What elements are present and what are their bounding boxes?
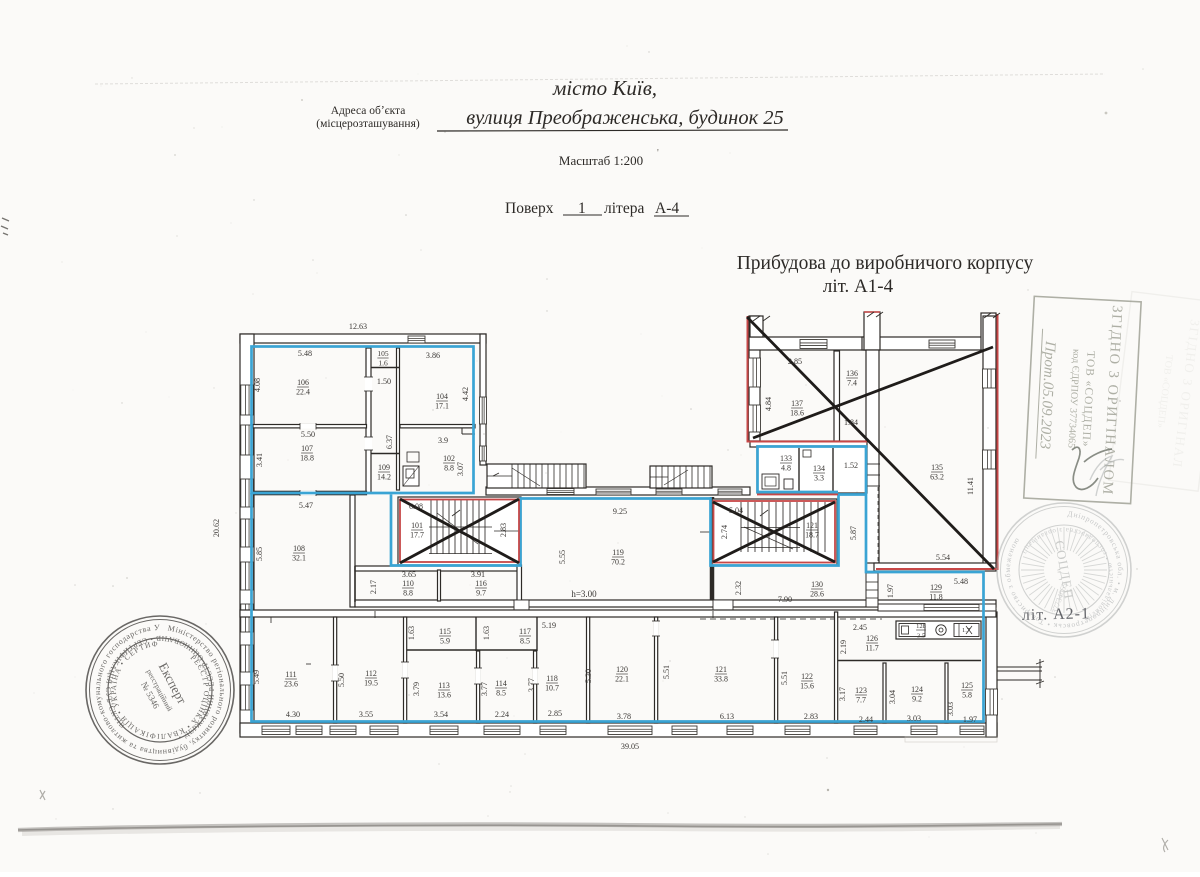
svg-text:112: 112 <box>365 669 377 678</box>
svg-text:14.2: 14.2 <box>377 473 391 482</box>
svg-text:вулиця Преображенська, будинок: вулиця Преображенська, будинок 25 <box>466 107 784 129</box>
svg-text:9.2: 9.2 <box>912 695 922 704</box>
svg-text:1.97: 1.97 <box>963 715 977 724</box>
svg-text:17.1: 17.1 <box>435 402 449 411</box>
svg-text:7.7: 7.7 <box>856 696 866 705</box>
svg-text:11.7: 11.7 <box>865 644 879 653</box>
svg-text:5.04: 5.04 <box>729 506 743 515</box>
svg-text:17.7: 17.7 <box>410 531 424 540</box>
svg-text:2.74: 2.74 <box>720 525 729 539</box>
svg-text:5.47: 5.47 <box>299 501 313 510</box>
svg-text:110: 110 <box>402 579 414 588</box>
svg-text:23.6: 23.6 <box>284 680 298 689</box>
svg-text:5.55: 5.55 <box>558 550 567 564</box>
svg-text:1.63: 1.63 <box>407 626 416 640</box>
svg-text:18.7: 18.7 <box>805 531 819 540</box>
svg-text:137: 137 <box>791 399 803 408</box>
svg-text:2.83: 2.83 <box>499 523 508 537</box>
svg-text:10.7: 10.7 <box>545 684 559 693</box>
svg-text:2.17: 2.17 <box>369 580 378 594</box>
svg-text:5.87: 5.87 <box>849 526 858 540</box>
svg-text:5.50: 5.50 <box>337 673 346 687</box>
svg-text:4.84: 4.84 <box>764 397 773 411</box>
svg-text:1.50: 1.50 <box>377 377 391 386</box>
svg-text:3.07: 3.07 <box>456 462 465 476</box>
svg-text:літ. А1-4: літ. А1-4 <box>823 276 894 297</box>
svg-text:7.4: 7.4 <box>847 379 857 388</box>
svg-text:120: 120 <box>616 665 628 674</box>
svg-text:123: 123 <box>855 686 867 695</box>
svg-text:3.9: 3.9 <box>438 436 448 445</box>
svg-text:19.5: 19.5 <box>364 679 378 688</box>
svg-text:116: 116 <box>475 579 487 588</box>
svg-text:5.54: 5.54 <box>936 553 950 562</box>
svg-text:8.5: 8.5 <box>520 637 530 646</box>
svg-text:3.79: 3.79 <box>412 682 421 696</box>
svg-text:1.6: 1.6 <box>378 359 388 368</box>
svg-text:5.51: 5.51 <box>662 665 671 679</box>
svg-text:5.30: 5.30 <box>584 669 593 683</box>
svg-text:33.8: 33.8 <box>714 675 728 684</box>
svg-text:133: 133 <box>780 454 792 463</box>
svg-text:4.8: 4.8 <box>781 464 791 473</box>
svg-text:3.03: 3.03 <box>946 702 955 716</box>
svg-text:4.30: 4.30 <box>286 710 300 719</box>
svg-text:136: 136 <box>846 369 858 378</box>
svg-text:11.8: 11.8 <box>929 593 943 602</box>
svg-text:2.32: 2.32 <box>734 581 743 595</box>
svg-text:5.85: 5.85 <box>255 547 264 561</box>
svg-text:5.50: 5.50 <box>301 430 315 439</box>
svg-text:3.54: 3.54 <box>434 710 448 719</box>
svg-text:32.1: 32.1 <box>292 554 306 563</box>
svg-text:107: 107 <box>301 444 313 453</box>
svg-text:121: 121 <box>806 521 818 530</box>
svg-text:113: 113 <box>438 681 450 690</box>
svg-text:2.44: 2.44 <box>859 715 873 724</box>
svg-text:3.04: 3.04 <box>888 690 897 704</box>
svg-text:3.78: 3.78 <box>617 712 631 721</box>
svg-text:118: 118 <box>546 674 558 683</box>
svg-text:літ. А2-1: літ. А2-1 <box>1022 605 1091 624</box>
svg-text:3.77: 3.77 <box>527 678 536 692</box>
svg-text:20.62: 20.62 <box>212 519 221 537</box>
svg-text:3.65: 3.65 <box>402 570 416 579</box>
svg-text:6.37: 6.37 <box>385 435 394 449</box>
svg-text:Поверх: Поверх <box>505 200 554 217</box>
svg-text:1: 1 <box>578 200 586 217</box>
svg-text:22.4: 22.4 <box>296 388 310 397</box>
svg-text:8.8: 8.8 <box>444 464 454 473</box>
svg-text:129: 129 <box>930 583 942 592</box>
svg-text:2.85: 2.85 <box>548 709 562 718</box>
svg-text:124: 124 <box>911 685 923 694</box>
svg-text:11.41: 11.41 <box>966 477 975 495</box>
svg-text:літера: літера <box>604 200 644 217</box>
svg-text:4.42: 4.42 <box>461 387 470 401</box>
svg-text:5.48: 5.48 <box>954 577 968 586</box>
svg-text:70.2: 70.2 <box>611 558 625 567</box>
svg-text:5.9: 5.9 <box>440 637 450 646</box>
svg-text:2.45: 2.45 <box>853 623 867 632</box>
svg-text:63.2: 63.2 <box>930 473 944 482</box>
svg-text:28.6: 28.6 <box>810 590 824 599</box>
svg-text:5.8: 5.8 <box>962 691 972 700</box>
svg-text:18.6: 18.6 <box>790 409 804 418</box>
svg-text:108: 108 <box>293 544 305 553</box>
svg-text:3.03: 3.03 <box>907 714 921 723</box>
svg-text:6.08: 6.08 <box>409 502 423 511</box>
svg-text:9.25: 9.25 <box>613 507 627 516</box>
svg-text:Прибудова до виробничого корпу: Прибудова до виробничого корпусу <box>737 253 1034 274</box>
svg-text:22.1: 22.1 <box>615 675 629 684</box>
svg-text:5.51: 5.51 <box>780 671 789 685</box>
svg-text:12.63: 12.63 <box>349 322 367 331</box>
svg-text:121: 121 <box>715 665 727 674</box>
svg-text:місто Київ,: місто Київ, <box>552 76 657 100</box>
svg-text:3.86: 3.86 <box>426 351 440 360</box>
svg-text:2.83: 2.83 <box>804 712 818 721</box>
svg-text:Масштаб 1:200: Масштаб 1:200 <box>559 153 643 168</box>
svg-text:109: 109 <box>378 463 390 472</box>
svg-text:119: 119 <box>612 548 624 557</box>
svg-text:3.3: 3.3 <box>814 474 824 483</box>
svg-text:7.90: 7.90 <box>778 595 792 604</box>
svg-text:2.19: 2.19 <box>839 640 848 654</box>
svg-text:1.84: 1.84 <box>844 418 858 427</box>
svg-text:Адреса обʼєкта: Адреса обʼєкта <box>331 105 406 117</box>
svg-text:104: 104 <box>436 392 448 401</box>
svg-text:117: 117 <box>519 627 531 636</box>
svg-text:3.17: 3.17 <box>838 687 847 701</box>
svg-text:1.63: 1.63 <box>482 626 491 640</box>
svg-text:134: 134 <box>813 464 825 473</box>
svg-text:6.13: 6.13 <box>720 712 734 721</box>
svg-text:3.77: 3.77 <box>480 682 489 696</box>
svg-text:128: 128 <box>916 623 926 630</box>
svg-text:15.6: 15.6 <box>800 682 814 691</box>
svg-text:3.41: 3.41 <box>255 453 264 467</box>
svg-text:2.24: 2.24 <box>495 710 509 719</box>
svg-text:135: 135 <box>931 463 943 472</box>
svg-text:2.85: 2.85 <box>788 357 802 366</box>
svg-text:102: 102 <box>443 454 455 463</box>
svg-text:3.55: 3.55 <box>359 710 373 719</box>
svg-text:8.5: 8.5 <box>496 689 506 698</box>
svg-text:1.52: 1.52 <box>844 461 858 470</box>
svg-text:18.8: 18.8 <box>300 454 314 463</box>
svg-text:1.7: 1.7 <box>962 627 971 634</box>
svg-text:9.7: 9.7 <box>476 589 486 598</box>
svg-text:(місцерозташування): (місцерозташування) <box>316 118 420 130</box>
svg-text:101: 101 <box>411 521 423 530</box>
svg-text:1.97: 1.97 <box>886 584 895 598</box>
svg-text:39.05: 39.05 <box>621 742 639 751</box>
svg-text:А-4: А-4 <box>655 200 679 217</box>
svg-text:105: 105 <box>377 349 389 358</box>
svg-text:126: 126 <box>866 634 878 643</box>
svg-text:106: 106 <box>297 378 309 387</box>
svg-text:': ' <box>657 148 659 159</box>
svg-text:h=3.00: h=3.00 <box>571 589 597 599</box>
svg-text:111: 111 <box>285 670 296 679</box>
svg-text:122: 122 <box>801 672 813 681</box>
svg-text:115: 115 <box>439 627 451 636</box>
svg-text:114: 114 <box>495 679 507 688</box>
svg-text:8.8: 8.8 <box>403 589 413 598</box>
svg-text:5.48: 5.48 <box>298 349 312 358</box>
svg-text:5.49: 5.49 <box>252 670 261 684</box>
svg-text:3.5: 3.5 <box>917 633 925 640</box>
svg-text:13.6: 13.6 <box>437 691 451 700</box>
svg-text:5.19: 5.19 <box>542 621 556 630</box>
svg-text:125: 125 <box>961 681 973 690</box>
svg-text:4.08: 4.08 <box>253 378 262 392</box>
svg-text:3.91: 3.91 <box>471 570 485 579</box>
svg-text:130: 130 <box>811 580 823 589</box>
